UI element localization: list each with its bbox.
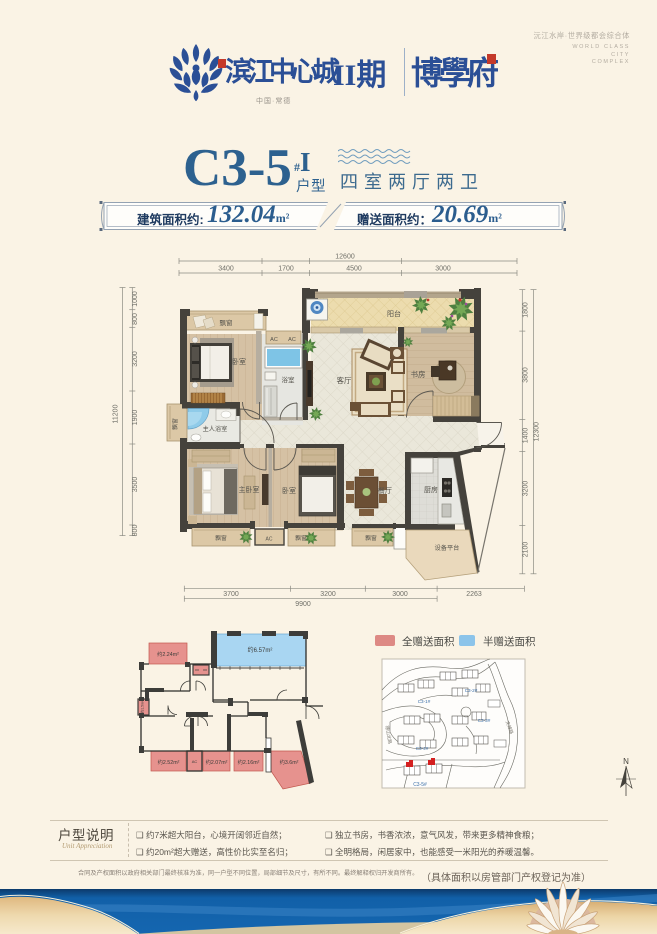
svg-text:C3-4#: C3-4# [416, 746, 429, 751]
svg-text:半赠送面积: 半赠送面积 [483, 635, 536, 648]
svg-text:C3-3#: C3-3# [478, 718, 491, 723]
svg-text:C3-1#: C3-1# [418, 699, 431, 704]
svg-text:约3.6m²: 约3.6m² [280, 758, 299, 766]
svg-text:约6.57m²: 约6.57m² [248, 646, 273, 654]
svg-text:约1.5m²: 约1.5m² [140, 700, 145, 713]
svg-text:约2.52m²: 约2.52m² [158, 758, 180, 766]
svg-text:N: N [623, 757, 629, 766]
svg-text:约2.07m²: 约2.07m² [206, 758, 228, 766]
svg-text:全赠送面积: 全赠送面积 [402, 635, 455, 648]
svg-text:约2.16m²: 约2.16m² [238, 758, 260, 766]
svg-text:约2.24m²: 约2.24m² [157, 650, 179, 658]
svg-text:C3-5#: C3-5# [413, 782, 427, 788]
svg-text:C3-2#: C3-2# [465, 688, 478, 693]
svg-text:AC: AC [192, 759, 198, 764]
